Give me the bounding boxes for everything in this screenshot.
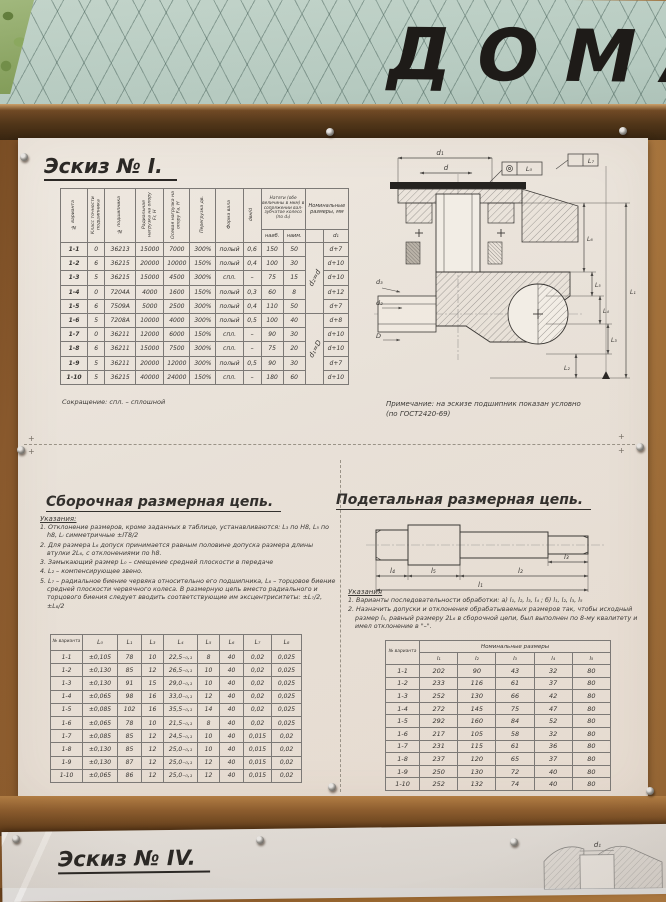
table-cell: 231 [420,740,458,753]
table-cell: 0,025 [272,664,302,677]
table-cell: 66 [496,690,534,703]
table-cell: ±0,085 [83,730,118,743]
table-cell: 150% [190,328,216,342]
col-header: l₄ [534,653,572,665]
table-row: 1-3252130664280 [386,690,611,703]
dim-label-d3: d₃ [376,278,383,286]
table-cell: 0,5 [243,356,261,370]
table-cell: 0,015 [244,730,272,743]
push-pin [12,835,20,843]
table-cell: 1-6 [51,716,83,729]
table-cell: 37 [534,753,572,766]
table-cell: 0,015 [244,743,272,756]
table-cell: 72 [496,765,534,778]
col-header: Осевая нагрузка на опору Fa, Н [164,189,190,243]
table-cell: 202 [420,665,458,678]
table-cell: 1-5 [51,703,83,716]
table-cell: 2500 [164,299,190,313]
table-cell: 80 [572,765,610,778]
table-cell: 80 [572,740,610,753]
nominal-sizes-header: Номинальные размеры, мм [305,189,348,230]
table-cell: 25,0₋₀,₁ [164,769,198,782]
table-cell: 110 [261,299,283,313]
table-cell: 1-4 [51,690,83,703]
header-row: № варианта Номинальные размеры [386,641,611,653]
table-cell: полый [216,299,243,313]
table-cell: 40 [220,664,244,677]
table-cell: 120 [458,753,496,766]
table-cell: 84 [496,715,534,728]
table-row: 1-1036213150007000300%полый0,615050d₂=dd… [61,243,349,257]
table-cell: 10 [198,730,220,743]
table-row: 1-120290433280 [386,665,611,678]
assembly-chain-table: № варианта L₀ L₁ L₃ L₄ L₅ L₆ L₇ L₈ 1-1±0… [50,634,302,783]
table-cell: 32 [534,727,572,740]
table-row: 1-10252132744080 [386,778,611,791]
table-row: 1-9±0,130871225,0₋₀,₁12400,0150,02 [51,756,302,769]
table-cell: 252 [420,778,458,791]
dim-label-l2: l₂ [518,567,523,575]
table-cell: 300% [190,356,216,370]
table-cell: 40 [220,716,244,729]
table-cell: 43 [496,665,534,678]
table-cell: 10 [198,743,220,756]
col-header: Радиальная нагрузка на опору Fr, Н [136,189,164,243]
table-cell: спл. [216,328,243,342]
main-parameters-table: № варианта Класс точности подшипника № п… [60,188,349,385]
table-cell: 1600 [164,285,190,299]
table-cell: 150 [261,243,283,257]
table-cell: 40 [220,756,244,769]
table-cell: 292 [420,715,458,728]
table-cell: 75 [496,702,534,715]
instruction-item: 1. Варианты последовательности обработки… [348,597,642,605]
table-cell: 16 [142,703,164,716]
table-cell: 5000 [136,299,164,313]
grid-paper-banner: ДОМА [0,0,666,115]
push-pin [636,443,644,451]
table-cell: 7204А [105,285,136,299]
table-cell: 29,0₋₀,₁ [164,677,198,690]
table-cell: 42 [534,690,572,703]
col-header: L₇ [244,635,272,651]
table-cell: d+7 [323,243,348,257]
table-cell: 132 [458,778,496,791]
register-mark: + [618,447,625,455]
table-cell: 145 [458,702,496,715]
table-cell: 20 [283,342,305,356]
table-cell: 100 [261,313,283,327]
table-cell: 91 [118,677,142,690]
table-cell: 1-2 [51,664,83,677]
table-cell: 12 [198,756,220,769]
table-cell: 80 [572,702,610,715]
table-cell: 65 [496,753,534,766]
dim-label-D: D [376,332,381,340]
dim-label-d2: d₂ [376,299,383,307]
table-row: 1-8±0,130851225,0₋₀,₁10400,0150,02 [51,743,302,756]
table-cell: 1-5 [61,299,88,313]
stepped-shaft-drawing: l₄ l₅ l₂ l₃ l₁ [348,510,628,598]
dim-label-L3: L₃ [611,337,617,344]
table-cell: 36215 [105,271,136,285]
table-cell: 4000 [164,313,190,327]
table-row: 1-10±0,065861225,0₋₀,₁12400,0150,02 [51,769,302,782]
table-cell: 1-9 [51,756,83,769]
table-cell: 300% [190,243,216,257]
col-header: № подшипника [105,189,136,243]
table-cell: 0,02 [244,664,272,677]
sketch1-title: Эскиз № I. [44,154,177,181]
table-cell: 130 [458,690,496,703]
sketch4-title: Эскиз № IV. [58,846,210,875]
table-cell: 40 [220,677,244,690]
table-cell: 1-3 [51,677,83,690]
instruction-item: 2. Назначить допуски и отклонения обраба… [348,606,642,631]
table-cell: 0,015 [244,756,272,769]
table-cell: 8 [283,285,305,299]
col-header: L₄ [164,635,198,651]
table-cell: 47 [534,702,572,715]
banner-title: ДОМА [387,12,666,100]
dim-label-L2: L₂ [564,365,570,372]
fold-line [24,444,640,445]
col-header-min: наим. [283,230,305,243]
col-header: l₅ [572,653,610,665]
table-cell: 100 [261,257,283,271]
col-header: L₈ [272,635,302,651]
dim-label-L5: L₅ [595,282,601,289]
table-cell: 1-8 [51,743,83,756]
table-cell: 0,015 [244,769,272,782]
table-cell: 6 [88,342,105,356]
frame-label-L0: L₀ [526,165,533,173]
dim-label-l1: l₁ [478,581,483,589]
table-cell: полый [216,356,243,370]
table-cell: 1-4 [386,702,420,715]
col-header-max: наиб. [261,230,283,243]
table-row: 1-5±0,0851021635,5₋₀,₁14400,020,025 [51,703,302,716]
col-header: Перегрузка дв. [190,189,216,243]
col-header: l₁ [420,653,458,665]
detail-chain-table: № варианта Номинальные размеры l₁ l₂ l₃ … [385,640,611,791]
table-cell: 130 [458,765,496,778]
table-cell: ±0,130 [83,756,118,769]
table-cell: 300% [190,342,216,356]
table-cell: d+7 [323,356,348,370]
table-row: 1-5292160845280 [386,715,611,728]
table-cell: 80 [572,727,610,740]
table-row: 1-4272145754780 [386,702,611,715]
table-cell: d+8 [323,313,348,327]
table-cell: 0,02 [244,677,272,690]
table-cell: 40 [283,313,305,327]
table-cell: 105 [458,727,496,740]
table-cell: 61 [496,677,534,690]
table-cell: 40 [220,703,244,716]
table-cell: 1-8 [61,342,88,356]
table-row: 1-4±0,065981633,0₋₀,₁12400,020,025 [51,690,302,703]
table-cell: 10 [198,664,220,677]
detail-notes: 1. Варианты последовательности обработки… [348,597,642,632]
sketch4-partial-drawing: d₁ [540,832,666,890]
bearing-assembly-drawing: d₁ d L₀ L₇ [370,146,648,396]
table-cell: 1-7 [386,740,420,753]
table-cell: 1-7 [61,328,88,342]
table-row: 1-2±0,130851226,5₋₀,₁10400,020,025 [51,664,302,677]
table-cell: ±0,130 [83,677,118,690]
nominal-note-cell: d₂=d [305,243,323,314]
table-cell: 0 [88,243,105,257]
table-cell: ±0,105 [83,651,118,664]
sketch1-sheet: Эскиз № I. № варианта Класс точности под… [18,138,648,800]
table-cell: 40 [220,730,244,743]
table-cell: 26,5₋₀,₁ [164,664,198,677]
drawing-note-line1: Примечание: на эскизе подшипник показан … [386,400,642,410]
table-cell: 12 [198,690,220,703]
table-cell: 0,02 [272,730,302,743]
table-cell: 87 [118,756,142,769]
col-header: L₆ [220,635,244,651]
table-cell: 250 [420,765,458,778]
table-row: 1-657208А100004000300%полый0,510040d₁=Dd… [61,313,349,327]
group-header: Номинальные размеры [420,641,611,653]
table-cell: ±0,130 [83,743,118,756]
table-cell: 40 [534,778,572,791]
table-cell: 80 [572,690,610,703]
nominal-note: d₁=D [307,339,323,359]
table-cell: 16 [142,690,164,703]
table-cell: 40 [220,769,244,782]
table-cell: полый [216,313,243,327]
table-cell: 300% [190,299,216,313]
table-cell: 0,02 [272,769,302,782]
table-cell: 217 [420,727,458,740]
table-cell: 61 [496,740,534,753]
table-cell: 4000 [136,285,164,299]
table-cell: – [243,342,261,356]
table-cell: 233 [420,677,458,690]
register-mark: + [28,435,35,443]
table-cell: 85 [118,730,142,743]
table-cell: 52 [534,715,572,728]
push-pin [619,127,627,135]
table-cell: 0,02 [244,651,272,664]
table-cell: 0,5 [243,313,261,327]
table-cell: 36213 [105,243,136,257]
table-cell: 40 [220,651,244,664]
table-cell: 1-7 [51,730,83,743]
table-cell: 12 [142,769,164,782]
table-cell: 115 [458,740,496,753]
detail-chain-title: Подетальная размерная цепь. [336,492,591,510]
table-cell: 1-2 [61,257,88,271]
assembly-chain-title: Сборочная размерная цепь. [46,494,281,512]
table-cell: 5 [88,370,105,384]
table-cell: 75 [261,271,283,285]
table-cell: 80 [572,753,610,766]
table-cell: 24000 [164,370,190,384]
table-cell: 237 [420,753,458,766]
col-header: L₀ [83,635,118,651]
push-pin [20,153,28,161]
table-cell: 58 [496,727,534,740]
table-cell: 10 [198,677,220,690]
table-cell: 12 [198,769,220,782]
table-cell: 60 [283,370,305,384]
table-cell: 36211 [105,328,136,342]
dim-label-l3: l₃ [564,553,569,561]
table-cell: 150% [190,257,216,271]
table-cell: – [243,328,261,342]
table-row: 1-8237120653780 [386,753,611,766]
table-cell: 1-1 [386,665,420,678]
dim-label-L1: L₁ [630,289,636,296]
table-cell: 36215 [105,257,136,271]
table-cell: 300% [190,271,216,285]
table-cell: спл. [216,370,243,384]
table-cell: 1-6 [61,313,88,327]
table-cell: 272 [420,702,458,715]
table-cell: 1-4 [61,285,88,299]
table-cell: 0,3 [243,285,261,299]
table-cell: 40 [220,743,244,756]
table-row: 1-6±0,065781021,5₋₀,₁8400,020,025 [51,716,302,729]
register-mark: + [28,448,35,456]
table-cell: 75 [261,342,283,356]
table-cell: 24,5₋₀,₁ [164,730,198,743]
table-cell: 90 [261,356,283,370]
table-cell: 22,5₋₀,₁ [164,651,198,664]
table-cell: 8 [198,716,220,729]
table-cell: 32 [534,665,572,678]
table-cell: 7509А [105,299,136,313]
table-cell: 1-9 [386,765,420,778]
table-cell: 98 [118,690,142,703]
table-cell: 0,02 [244,703,272,716]
table-cell: 21,5₋₀,₁ [164,716,198,729]
table-cell: 5 [88,271,105,285]
table-cell: 78 [118,716,142,729]
table-cell: 1-3 [386,690,420,703]
instruction-item: 2. Для размера L₆ допуск принимается рав… [40,542,338,559]
dim-label-l5: l₅ [431,567,436,575]
table-cell: d+10 [323,257,348,271]
table-cell: ±0,065 [83,716,118,729]
table-cell: 0,02 [244,716,272,729]
table-row: 1-1±0,105781022,5₋₀,₁8400,020,025 [51,651,302,664]
col-header: Форма вала [216,189,243,243]
table-cell: 20000 [136,356,164,370]
drawing-note-line2: (по ГОСТ2420-69) [386,410,642,420]
natyag-header: Натяги (обе величины в мкм) в сопряжении… [261,189,305,230]
table-cell: 30 [283,257,305,271]
col-header-variant: № варианта [386,641,420,665]
table-cell: 6 [88,299,105,313]
push-pin [326,128,334,136]
table-cell: 1-1 [51,651,83,664]
header-row: № варианта L₀ L₁ L₃ L₄ L₅ L₆ L₇ L₈ [51,635,302,651]
table-cell: 86 [118,769,142,782]
table-cell: полый [216,285,243,299]
table-cell: 90 [261,328,283,342]
table-cell: 10000 [164,257,190,271]
table-cell: 15000 [136,271,164,285]
table-cell: 25,0₋₀,₁ [164,743,198,756]
table-cell: 0,025 [272,677,302,690]
table-cell: 40 [220,690,244,703]
table-cell: d+7 [323,299,348,313]
table-cell: 0 [88,285,105,299]
table-cell: 35,5₋₀,₁ [164,703,198,716]
instruction-item: 3. Замыкающий размер L₀ – смещение средн… [40,559,338,567]
table-cell: 36215 [105,370,136,384]
table-cell: 1-10 [386,778,420,791]
table-cell: 30 [283,328,305,342]
dim-label-d1: d₁ [436,149,443,157]
col-header-d1: d₁ [323,230,348,243]
table-cell: 15 [142,677,164,690]
table-cell: d+10 [323,328,348,342]
col-header-note [305,230,323,243]
detail-notes-label: Указания [348,588,382,596]
nominal-note-cell: d₁=D [305,313,323,384]
abbreviation-footnote: Сокращение: спл. – сплошной [62,398,165,406]
table-cell: 25,0₋₀,₁ [164,756,198,769]
table-cell: 50 [283,243,305,257]
col-header: dвн/d [243,189,261,243]
table-cell: 10000 [136,313,164,327]
table-row: 1-7231115613680 [386,740,611,753]
table-cell: 1-3 [61,271,88,285]
table-cell: 160 [458,715,496,728]
col-header: L₁ [118,635,142,651]
table-cell: 0,02 [244,690,272,703]
table-cell: d+10 [323,342,348,356]
col-header: Класс точности подшипника [88,189,105,243]
nominal-note: d₂=d [307,268,322,287]
table-row: 1-9250130724080 [386,765,611,778]
assembly-notes: 1. Отклонение размеров, кроме заданных в… [40,524,338,612]
table-cell: 0,02 [272,743,302,756]
header-row: № варианта Класс точности подшипника № п… [61,189,349,230]
table-cell: ±0,130 [83,664,118,677]
table-cell: 0,025 [272,703,302,716]
table-cell: 1-10 [61,370,88,384]
table-cell: полый [216,257,243,271]
table-cell: 150% [190,285,216,299]
table-cell: 85 [118,743,142,756]
table-cell: 180 [261,370,283,384]
push-pin [646,787,654,795]
table-cell: 0,02 [272,756,302,769]
dim-label-L6: L₆ [587,236,593,243]
table-cell: 0,025 [272,651,302,664]
instruction-item: 4. L₂ – компенсирующее звено. [40,568,338,576]
col-header: L₃ [142,635,164,651]
table-cell: – [243,370,261,384]
table-cell: 10 [142,716,164,729]
table-cell: 1-6 [386,727,420,740]
table-cell: 80 [572,778,610,791]
table-cell: 300% [190,313,216,327]
instruction-item: 5. L₇ – радиальное биение червяка относи… [40,578,338,611]
table-cell: 7208А [105,313,136,327]
table-cell: 33,0₋₀,₁ [164,690,198,703]
table-cell: 1-5 [386,715,420,728]
table-cell: 0,4 [243,257,261,271]
table-cell: 0,4 [243,299,261,313]
